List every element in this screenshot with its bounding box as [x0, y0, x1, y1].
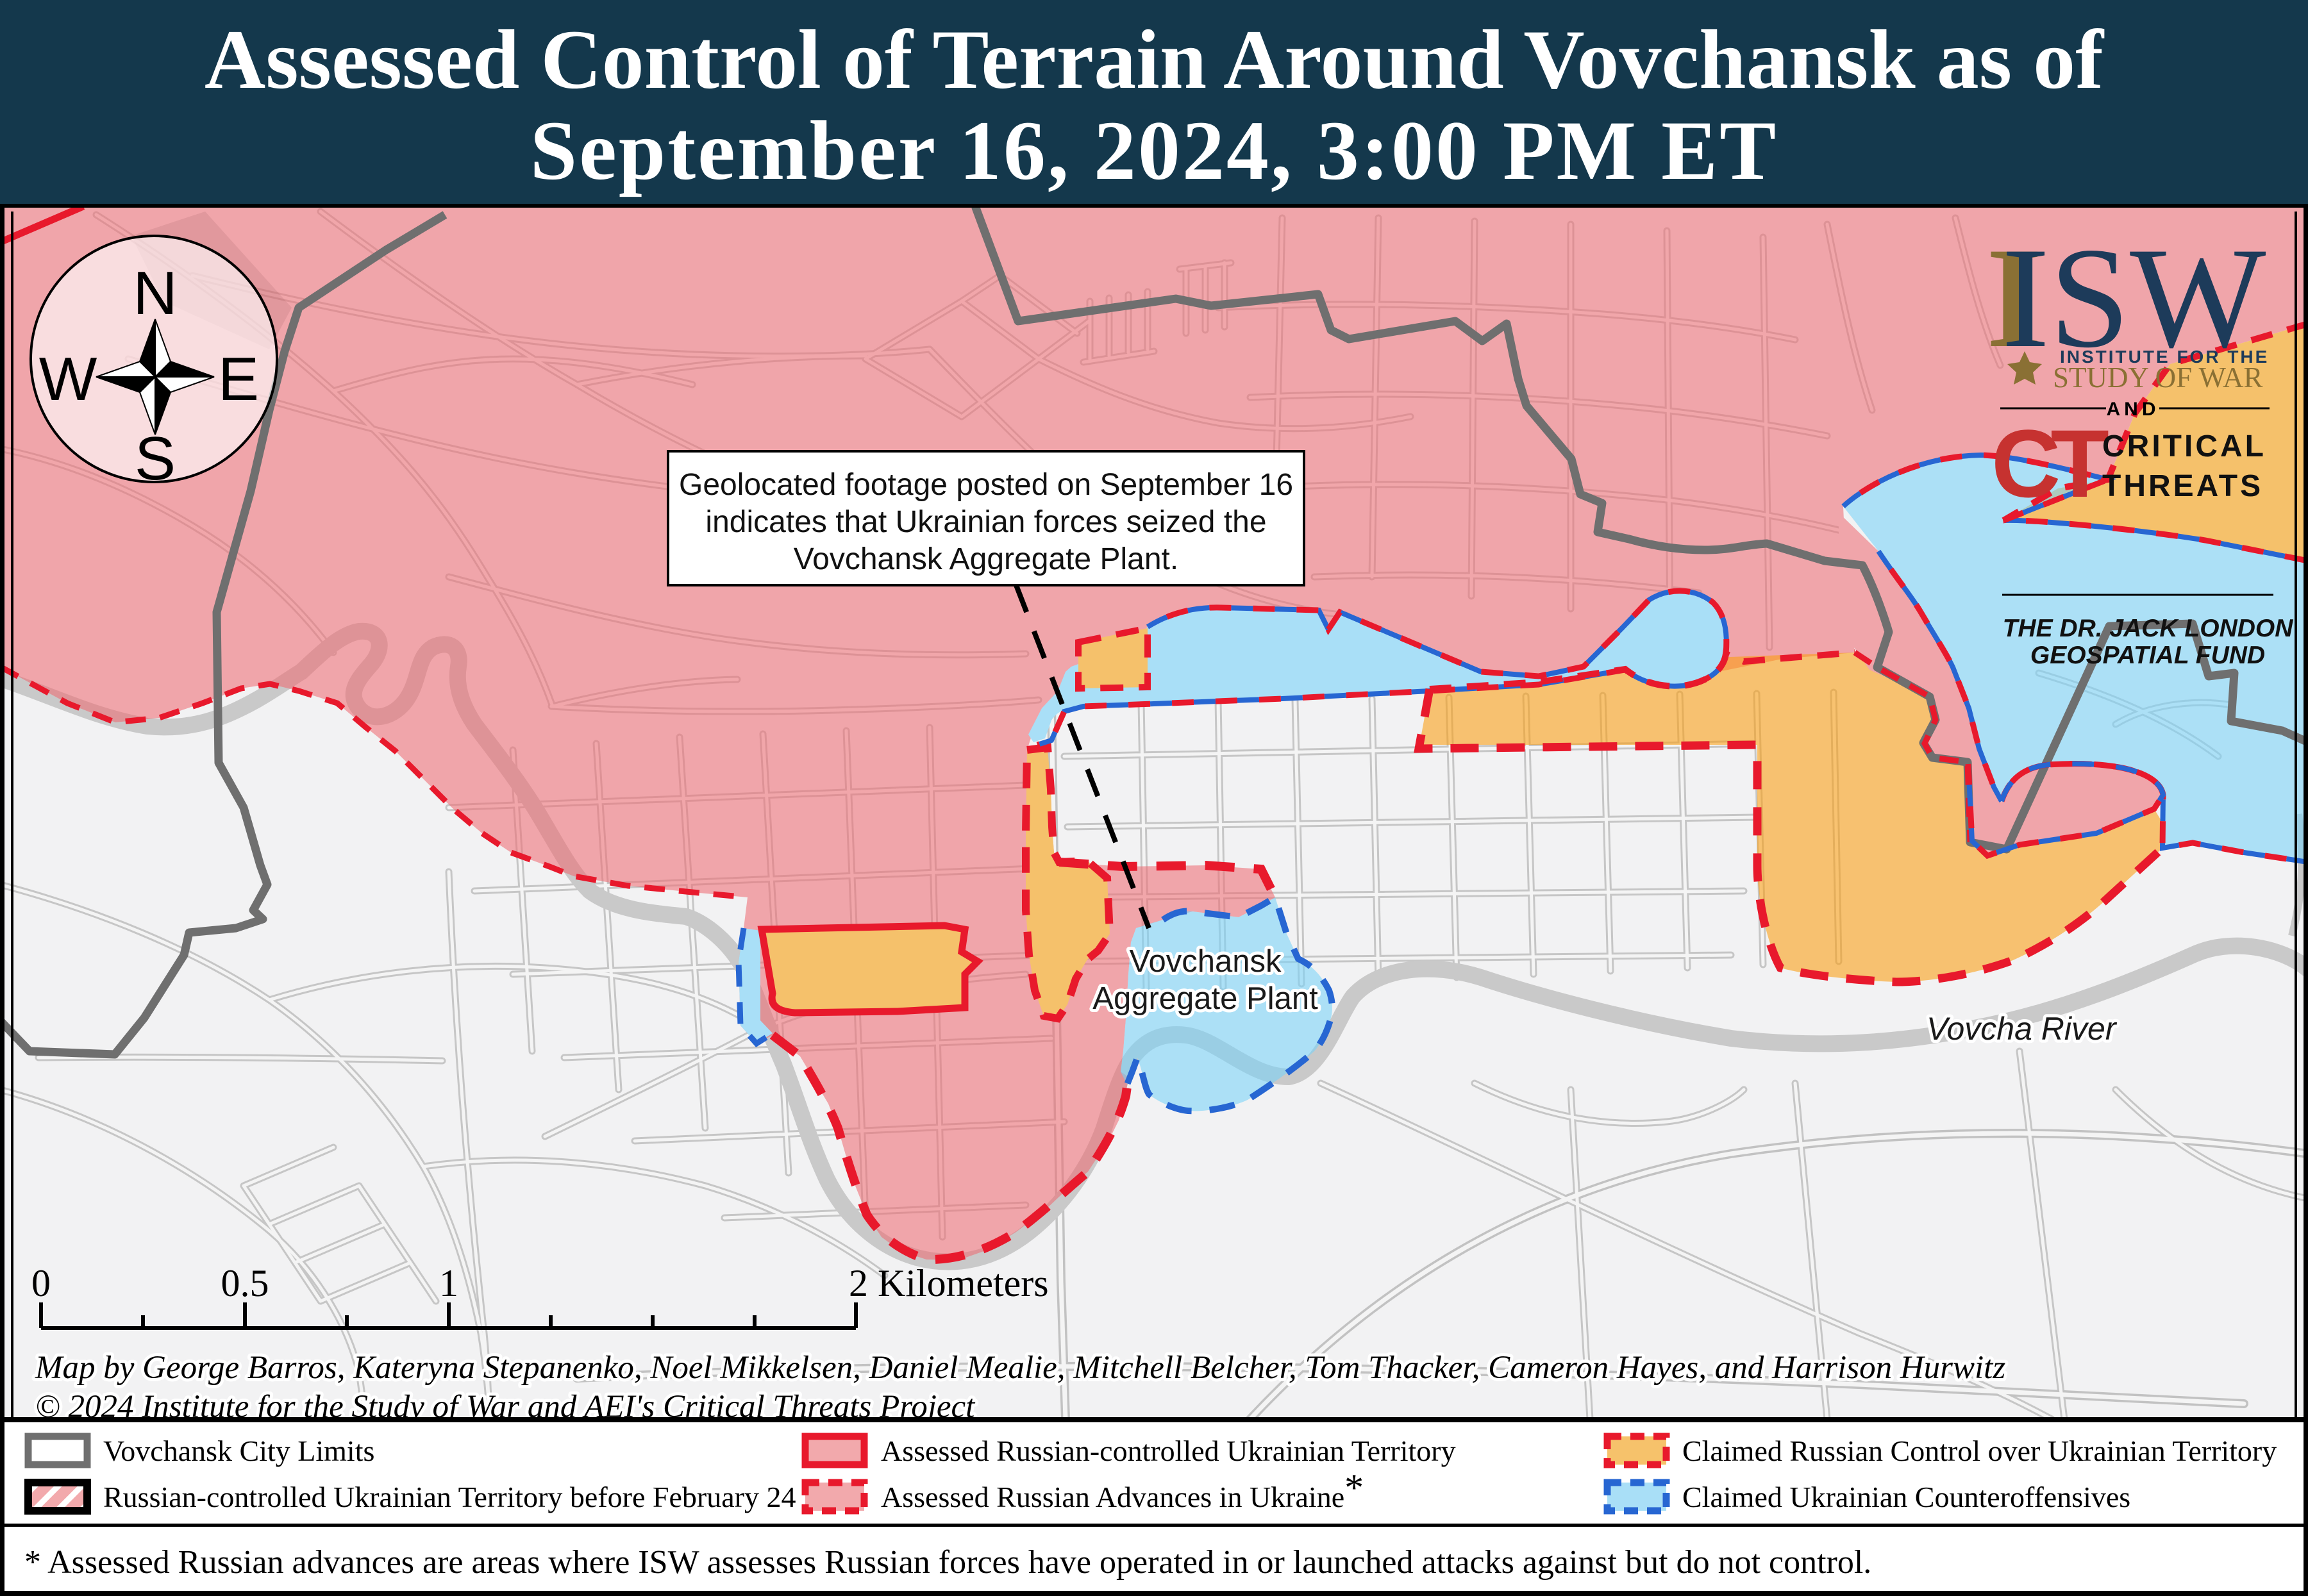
svg-text:Aggregate Plant: Aggregate Plant — [1092, 981, 1318, 1016]
svg-text:Vovcha River: Vovcha River — [1927, 1011, 2118, 1047]
svg-text:S: S — [135, 424, 176, 493]
svg-text:CRITICAL: CRITICAL — [2102, 429, 2266, 463]
svg-text:Assessed Russian Advances in U: Assessed Russian Advances in Ukraine* — [881, 1467, 1364, 1513]
svg-text:© 2024 Institute for the Study: © 2024 Institute for the Study of War an… — [35, 1389, 976, 1419]
svg-text:E: E — [218, 345, 259, 413]
svg-text:Russian-controlled Ukrainian T: Russian-controlled Ukrainian Territory b… — [103, 1481, 796, 1513]
svg-text:indicates that Ukrainian force: indicates that Ukrainian forces seized t… — [705, 505, 1266, 539]
svg-text:THREATS: THREATS — [2102, 469, 2263, 503]
svg-text:Assessed Russian-controlled Uk: Assessed Russian-controlled Ukrainian Te… — [881, 1434, 1456, 1467]
svg-text:Map by George Barros, Kateryna: Map by George Barros, Kateryna Stepanenk… — [35, 1350, 2005, 1386]
svg-text:GEOSPATIAL FUND: GEOSPATIAL FUND — [2030, 642, 2265, 669]
svg-text:Vovchansk City Limits: Vovchansk City Limits — [103, 1434, 374, 1467]
svg-text:0.5: 0.5 — [221, 1262, 269, 1304]
svg-text:N: N — [133, 259, 177, 328]
svg-text:Claimed Russian Control over U: Claimed Russian Control over Ukrainian T… — [1682, 1434, 2277, 1467]
svg-text:CT: CT — [1991, 410, 2109, 517]
svg-text:1: 1 — [439, 1262, 458, 1304]
svg-text:AND: AND — [2107, 399, 2160, 420]
svg-text:0: 0 — [31, 1262, 51, 1304]
svg-text:2 Kilometers: 2 Kilometers — [849, 1262, 1049, 1304]
svg-text:Geolocated footage posted on S: Geolocated footage posted on September 1… — [679, 468, 1293, 502]
svg-text:STUDY OF WAR: STUDY OF WAR — [2053, 362, 2263, 394]
svg-text:Vovchansk: Vovchansk — [1130, 944, 1282, 979]
svg-text:THE DR. JACK LONDON: THE DR. JACK LONDON — [2003, 615, 2294, 642]
svg-text:W: W — [39, 345, 97, 413]
svg-text:Claimed Ukrainian Counteroffen: Claimed Ukrainian Counteroffensives — [1682, 1481, 2130, 1513]
svg-text:Vovchansk Aggregate Plant.: Vovchansk Aggregate Plant. — [794, 542, 1178, 576]
